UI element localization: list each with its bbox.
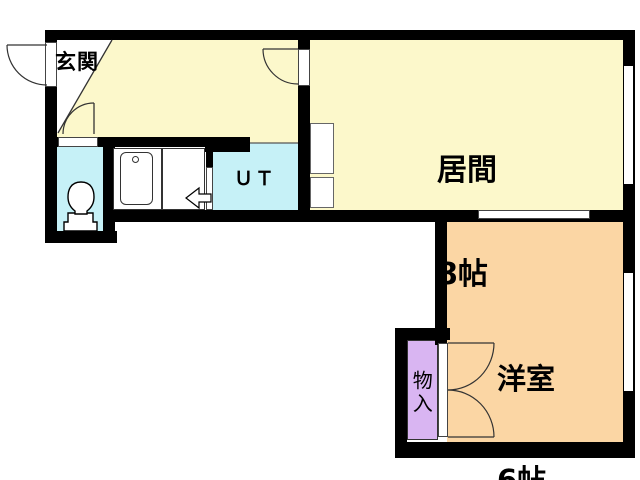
label-living-size: 8帖 [437,258,497,293]
floor-plan: 玄関 居間 8帖 洋室 6帖 ＵＴ 物入 [0,0,640,480]
label-utility: ＵＴ [234,168,276,190]
living-door-swing-arc-icon [263,49,298,84]
label-storage: 物入 [409,370,432,416]
storage-door-swing-arc-lower [448,390,494,437]
toilet-bowl [68,182,94,214]
label-western-size: 6帖 [497,464,555,480]
toilet-tank [64,213,97,231]
label-genkan: 玄関 [55,50,99,74]
label-western: 洋室 6帖 [497,296,555,480]
label-living-name: 居間 [437,154,497,189]
label-living: 居間 8帖 [437,84,497,362]
entrance-door-swing-arc-icon [7,45,47,85]
door-direction-arrow-icon [186,188,211,208]
label-western-name: 洋室 [497,363,555,397]
